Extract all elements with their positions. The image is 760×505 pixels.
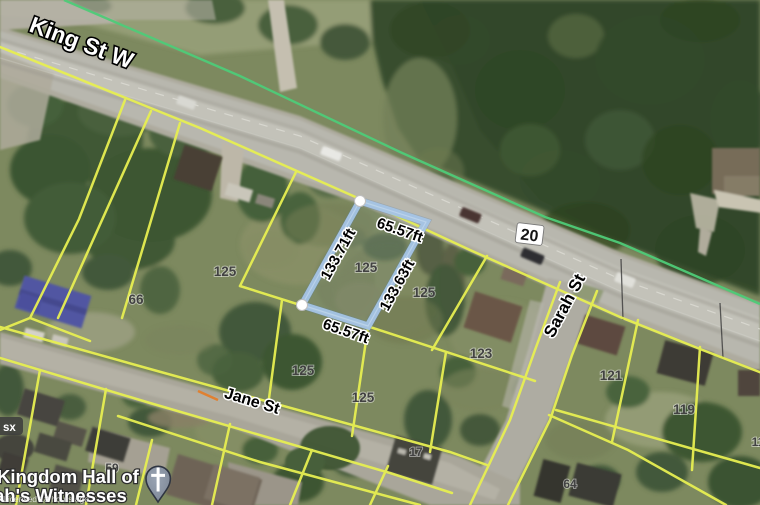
svg-text:125: 125 <box>352 390 375 405</box>
svg-text:66: 66 <box>128 292 144 307</box>
svg-text:17: 17 <box>409 445 423 459</box>
svg-text:121: 121 <box>600 368 623 383</box>
svg-text:Kingdom Hall of: Kingdom Hall of <box>0 466 140 487</box>
svg-text:64: 64 <box>563 477 577 491</box>
svg-text:125: 125 <box>214 264 237 279</box>
svg-text:123: 123 <box>470 346 493 361</box>
svg-text:125: 125 <box>413 285 436 300</box>
svg-text:sx: sx <box>3 422 16 434</box>
svg-text:20: 20 <box>520 227 540 246</box>
svg-text:125: 125 <box>355 260 378 275</box>
svg-text:Licensed 18 hours ago: Licensed 18 hours ago <box>3 494 89 504</box>
svg-text:119: 119 <box>673 402 695 417</box>
svg-text:11: 11 <box>752 435 760 449</box>
svg-text:125: 125 <box>292 363 315 378</box>
